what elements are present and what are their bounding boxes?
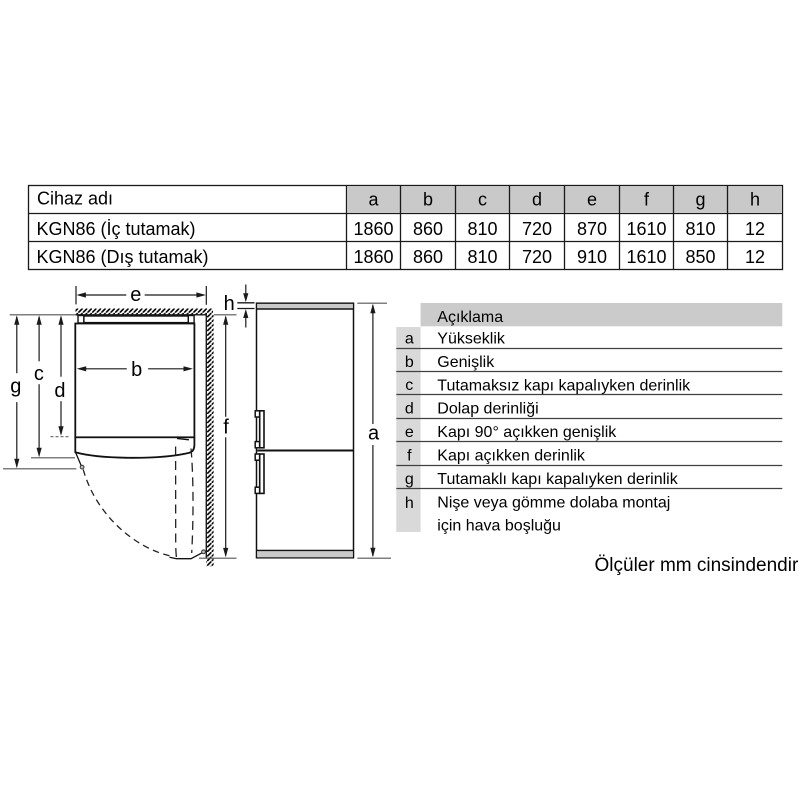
svg-text:a: a: [405, 330, 414, 347]
svg-text:e: e: [130, 284, 141, 306]
svg-text:1610: 1610: [626, 219, 666, 239]
svg-text:a: a: [368, 190, 379, 210]
svg-text:Kapı açıkken derinlik: Kapı açıkken derinlik: [437, 448, 586, 465]
svg-text:için hava boşluğu: için hava boşluğu: [437, 518, 561, 535]
svg-text:1860: 1860: [353, 219, 393, 239]
svg-text:b: b: [131, 359, 142, 381]
svg-text:Açıklama: Açıklama: [437, 309, 503, 326]
svg-text:g: g: [10, 375, 21, 397]
svg-text:Cihaz adı: Cihaz adı: [37, 189, 113, 209]
svg-text:h: h: [750, 190, 760, 210]
svg-text:720: 720: [522, 219, 552, 239]
svg-text:c: c: [34, 363, 44, 385]
svg-text:870: 870: [577, 219, 607, 239]
svg-text:Genişlik: Genişlik: [437, 354, 495, 371]
svg-text:Ölçüler mm cinsindendir: Ölçüler mm cinsindendir: [595, 555, 799, 576]
svg-text:b: b: [405, 354, 414, 371]
svg-text:d: d: [532, 190, 542, 210]
svg-text:1610: 1610: [626, 247, 666, 267]
svg-text:KGN86 (İç tutamak): KGN86 (İç tutamak): [37, 219, 196, 239]
svg-text:f: f: [407, 448, 412, 465]
svg-text:h: h: [405, 495, 414, 512]
svg-text:h: h: [224, 293, 235, 315]
svg-text:Tutamaksız kapı kapalıyken der: Tutamaksız kapı kapalıyken derinlik: [437, 377, 691, 394]
svg-text:g: g: [405, 471, 414, 488]
svg-text:720: 720: [522, 247, 552, 267]
svg-text:860: 860: [413, 219, 443, 239]
svg-text:c: c: [405, 377, 413, 394]
svg-text:e: e: [405, 424, 414, 441]
svg-text:12: 12: [745, 219, 765, 239]
svg-text:a: a: [368, 423, 380, 445]
svg-text:810: 810: [467, 219, 497, 239]
svg-text:Kapı 90° açıkken genişlik: Kapı 90° açıkken genişlik: [437, 424, 617, 441]
svg-text:12: 12: [745, 247, 765, 267]
svg-text:f: f: [223, 417, 229, 439]
svg-text:g: g: [695, 190, 705, 210]
svg-text:810: 810: [685, 219, 715, 239]
svg-text:Yükseklik: Yükseklik: [437, 330, 506, 347]
svg-text:c: c: [478, 190, 487, 210]
svg-text:810: 810: [467, 247, 497, 267]
svg-text:Tutamaklı kapı kapalıyken deri: Tutamaklı kapı kapalıyken derinlik: [437, 471, 678, 488]
svg-text:Nişe veya gömme dolaba montaj: Nişe veya gömme dolaba montaj: [437, 495, 670, 512]
svg-text:860: 860: [413, 247, 443, 267]
svg-text:d: d: [54, 380, 65, 402]
svg-text:1860: 1860: [353, 247, 393, 267]
svg-text:d: d: [405, 400, 414, 417]
svg-text:b: b: [423, 190, 433, 210]
svg-text:910: 910: [577, 247, 607, 267]
svg-text:e: e: [587, 190, 597, 210]
svg-text:Dolap derinliği: Dolap derinliği: [437, 401, 538, 418]
svg-text:850: 850: [685, 247, 715, 267]
svg-text:KGN86 (Dış tutamak): KGN86 (Dış tutamak): [37, 247, 209, 267]
